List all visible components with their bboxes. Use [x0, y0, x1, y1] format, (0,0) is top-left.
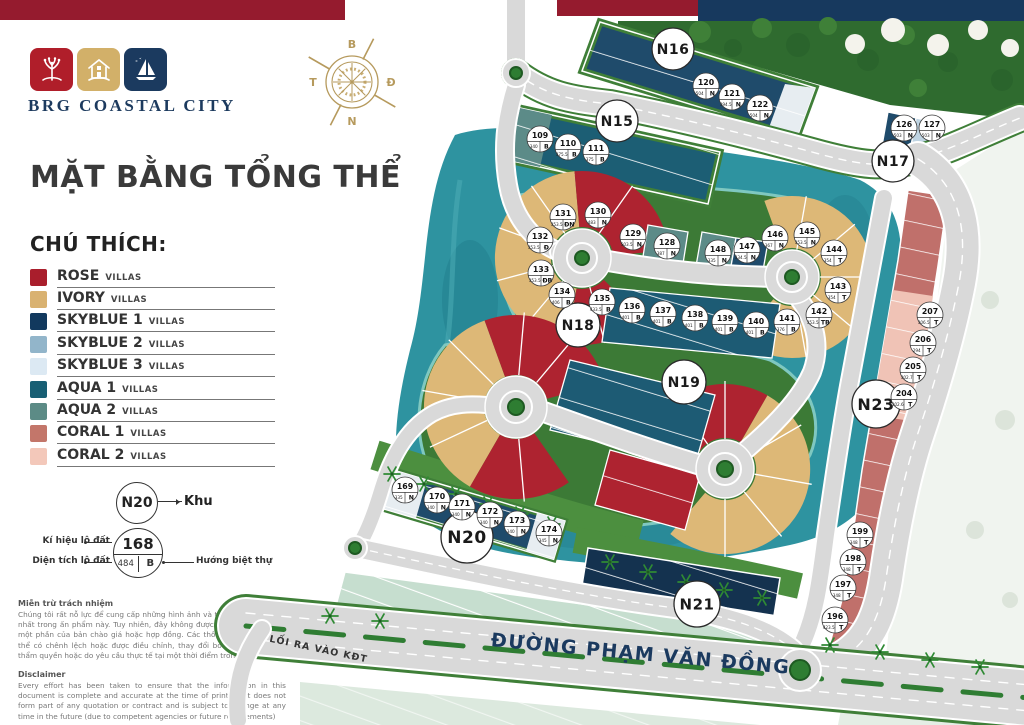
lot-badge[interactable]: 110375.5B [555, 134, 581, 160]
svg-text:198: 198 [845, 554, 861, 563]
svg-text:335: 335 [395, 495, 403, 500]
site-plan-map: ĐƯỜNG PHẠM VĂN ĐỒNG LỐI RA VÀO KĐT N15N1… [0, 0, 1024, 725]
lot-badge[interactable]: 131353.5ĐN [550, 204, 576, 230]
svg-text:N15: N15 [601, 114, 634, 130]
svg-text:N: N [553, 538, 558, 545]
svg-text:142: 142 [811, 307, 827, 316]
svg-text:N: N [779, 243, 784, 250]
lot-badge[interactable]: 143354T [825, 277, 851, 303]
svg-text:134: 134 [554, 287, 571, 296]
svg-text:348: 348 [850, 540, 858, 545]
svg-text:N: N [671, 251, 676, 258]
svg-text:348: 348 [833, 593, 841, 598]
svg-text:N: N [736, 102, 741, 109]
svg-text:136: 136 [624, 302, 640, 311]
svg-text:N: N [811, 240, 816, 247]
svg-text:111: 111 [588, 144, 604, 153]
svg-text:N: N [908, 133, 913, 140]
svg-text:503: 503 [922, 133, 930, 138]
svg-text:109: 109 [532, 131, 548, 140]
svg-text:401: 401 [715, 327, 723, 332]
compass-north-label: B [348, 38, 356, 51]
svg-text:401: 401 [622, 315, 630, 320]
lot-badge[interactable]: 148335N [705, 240, 731, 266]
svg-text:340: 340 [507, 529, 515, 534]
lot-badge[interactable]: 129503.5N [620, 224, 646, 250]
svg-text:N23: N23 [857, 395, 894, 414]
svg-text:353.5: 353.5 [529, 278, 541, 283]
svg-text:387: 387 [657, 251, 665, 256]
zone-badge[interactable]: N15 [596, 100, 638, 142]
svg-text:B: B [636, 315, 641, 322]
svg-text:127: 127 [924, 120, 940, 129]
svg-text:401: 401 [746, 330, 754, 335]
svg-text:N: N [722, 258, 727, 265]
svg-text:294: 294 [913, 348, 921, 353]
svg-text:B: B [606, 307, 611, 314]
svg-text:140: 140 [748, 317, 765, 326]
svg-text:N: N [764, 113, 769, 120]
svg-text:148: 148 [710, 245, 726, 254]
svg-text:401: 401 [653, 319, 661, 324]
svg-text:N: N [494, 520, 499, 527]
lot-badge[interactable]: 133353.5ĐB [528, 260, 554, 286]
svg-text:138: 138 [687, 310, 703, 319]
svg-text:171: 171 [454, 499, 470, 508]
svg-text:B: B [791, 327, 796, 334]
svg-text:394.5: 394.5 [720, 102, 732, 107]
lot-badge[interactable]: 122504N [747, 95, 773, 121]
svg-text:141: 141 [779, 314, 795, 323]
lot-badge[interactable]: 138401B [682, 305, 708, 331]
lot-badge[interactable]: 173340N [504, 511, 530, 537]
svg-text:Đ: Đ [544, 245, 549, 252]
svg-text:375: 375 [586, 157, 594, 162]
svg-text:433.5: 433.5 [590, 307, 602, 312]
svg-text:TB: TB [821, 320, 830, 327]
svg-text:196: 196 [827, 612, 843, 621]
svg-text:N: N [602, 220, 607, 227]
lot-badge[interactable]: 139401B [712, 309, 738, 335]
lot-badge[interactable]: 111375B [583, 139, 609, 165]
svg-text:504: 504 [750, 113, 758, 118]
svg-text:N: N [441, 505, 446, 512]
svg-text:169: 169 [397, 482, 413, 491]
svg-text:N17: N17 [877, 154, 910, 170]
svg-text:353.5: 353.5 [551, 222, 563, 227]
svg-text:ĐB: ĐB [542, 278, 552, 285]
svg-text:B: B [729, 327, 734, 334]
zone-badge[interactable]: N19 [662, 360, 706, 404]
svg-text:N: N [521, 529, 526, 536]
svg-text:133: 133 [533, 265, 549, 274]
lot-badge[interactable]: 146367N [762, 225, 788, 251]
svg-text:423.5: 423.5 [823, 625, 835, 630]
svg-text:204: 204 [896, 389, 913, 398]
lot-badge[interactable]: 142353.5TB [806, 302, 832, 328]
svg-text:143: 143 [830, 282, 846, 291]
lot-badge[interactable]: 147334.5N [734, 237, 760, 263]
svg-text:145: 145 [799, 227, 815, 236]
svg-text:147: 147 [739, 242, 755, 251]
lot-badge[interactable]: 134406B [549, 282, 575, 308]
svg-text:345: 345 [539, 538, 547, 543]
compass-south-label: N [347, 115, 356, 128]
svg-text:340: 340 [452, 512, 460, 517]
svg-text:306.5: 306.5 [918, 320, 930, 325]
svg-text:B: B [699, 323, 704, 330]
svg-text:122: 122 [752, 100, 768, 109]
svg-text:207: 207 [922, 307, 938, 316]
svg-text:N: N [637, 242, 642, 249]
svg-text:205: 205 [905, 362, 921, 371]
svg-text:340: 340 [480, 520, 488, 525]
svg-text:503.5: 503.5 [621, 242, 633, 247]
svg-text:354: 354 [828, 295, 836, 300]
svg-text:N19: N19 [668, 375, 701, 391]
svg-text:367: 367 [765, 243, 773, 248]
svg-text:B: B [566, 300, 571, 307]
svg-text:353.5: 353.5 [795, 240, 807, 245]
lot-badge[interactable]: 204302.6T [891, 384, 917, 410]
svg-text:131: 131 [555, 209, 571, 218]
svg-text:483: 483 [588, 220, 596, 225]
svg-text:126: 126 [896, 120, 912, 129]
lot-badge[interactable]: 126503N [891, 115, 917, 141]
zone-badge[interactable]: N17 [872, 140, 914, 182]
lot-badge[interactable]: 170340N [424, 487, 450, 513]
svg-text:353.5: 353.5 [528, 245, 540, 250]
compass-west-label: T [309, 76, 317, 89]
svg-text:335: 335 [708, 258, 716, 263]
lot-badge[interactable]: 205302.7T [900, 357, 926, 383]
svg-text:135: 135 [594, 294, 610, 303]
lot-badge[interactable]: 197348T [830, 575, 856, 601]
lot-badge[interactable]: 121394.5N [719, 84, 745, 110]
svg-text:504: 504 [696, 91, 704, 96]
lot-badge[interactable]: 132353.5Đ [527, 227, 553, 253]
svg-text:170: 170 [429, 492, 446, 501]
svg-text:376: 376 [777, 327, 785, 332]
svg-text:334.5: 334.5 [735, 255, 747, 260]
lot-badge[interactable]: 207306.5T [917, 302, 943, 328]
lot-badge[interactable]: 174345N [536, 520, 562, 546]
svg-text:340: 340 [427, 505, 435, 510]
svg-text:340: 340 [530, 144, 538, 149]
svg-text:N18: N18 [562, 318, 595, 334]
svg-text:197: 197 [835, 580, 851, 589]
lot-badge[interactable]: 144354T [821, 240, 847, 266]
svg-text:ĐN: ĐN [564, 222, 574, 229]
svg-text:121: 121 [724, 89, 740, 98]
svg-text:B: B [667, 319, 672, 326]
svg-text:172: 172 [482, 507, 498, 516]
lot-badge[interactable]: 199348T [847, 522, 873, 548]
lot-badge[interactable]: 198348T [840, 549, 866, 575]
svg-text:N20: N20 [447, 528, 486, 548]
svg-text:N: N [409, 495, 414, 502]
zone-badge[interactable]: N21 [674, 581, 720, 627]
master-plan-page: { "header": {"brand": "BRG COASTAL CITY"… [0, 0, 1024, 725]
svg-text:128: 128 [659, 238, 675, 247]
svg-text:130: 130 [590, 207, 607, 216]
svg-text:N: N [751, 255, 756, 262]
svg-text:206: 206 [915, 335, 931, 344]
svg-text:406: 406 [552, 300, 560, 305]
svg-text:B: B [600, 157, 605, 164]
svg-text:354: 354 [824, 258, 832, 263]
lot-badge[interactable]: 130483N [585, 202, 611, 228]
svg-text:N16: N16 [657, 42, 690, 58]
svg-text:144: 144 [826, 245, 843, 254]
svg-text:353.5: 353.5 [807, 320, 819, 325]
svg-text:110: 110 [560, 139, 577, 148]
svg-text:401: 401 [685, 323, 693, 328]
svg-text:N: N [936, 133, 941, 140]
svg-text:N: N [710, 91, 715, 98]
svg-text:129: 129 [625, 229, 641, 238]
svg-text:302.7: 302.7 [901, 375, 913, 380]
svg-text:173: 173 [509, 516, 525, 525]
lot-badge[interactable]: 120504N [693, 73, 719, 99]
lot-badge[interactable]: 140401B [743, 312, 769, 338]
lot-badge[interactable]: 206294T [910, 330, 936, 356]
svg-text:120: 120 [698, 78, 715, 87]
svg-text:375.5: 375.5 [556, 152, 568, 157]
svg-text:N: N [466, 512, 471, 519]
lot-badge[interactable]: 171340N [449, 494, 475, 520]
compass-east-label: Đ [386, 76, 395, 89]
lot-badge[interactable]: 128387N [654, 233, 680, 259]
svg-text:B: B [760, 330, 765, 337]
svg-text:174: 174 [541, 525, 558, 534]
svg-text:N21: N21 [680, 595, 715, 613]
svg-text:146: 146 [767, 230, 783, 239]
lot-badge[interactable]: 196423.5T [822, 607, 848, 633]
lot-badge[interactable]: 169335N [392, 477, 418, 503]
lot-badge[interactable]: 109340B [527, 126, 553, 152]
svg-text:199: 199 [852, 527, 868, 536]
svg-text:348: 348 [843, 567, 851, 572]
svg-text:B: B [572, 152, 577, 159]
compass-rose: B Đ N T [309, 38, 396, 128]
svg-text:139: 139 [717, 314, 733, 323]
svg-text:302.6: 302.6 [892, 402, 904, 407]
lot-badge[interactable]: 136401B [619, 297, 645, 323]
svg-text:503: 503 [894, 133, 902, 138]
lot-badge[interactable]: 172340N [477, 502, 503, 528]
lot-badge[interactable]: 127503N [919, 115, 945, 141]
zone-badge[interactable]: N16 [652, 28, 694, 70]
lot-badge[interactable]: 135433.5B [589, 289, 615, 315]
svg-text:B: B [544, 144, 549, 151]
lot-badge[interactable]: 145353.5N [794, 222, 820, 248]
lot-badge[interactable]: 137401B [650, 301, 676, 327]
svg-text:137: 137 [655, 306, 671, 315]
lot-badge[interactable]: 141376B [774, 309, 800, 335]
svg-text:132: 132 [532, 232, 548, 241]
